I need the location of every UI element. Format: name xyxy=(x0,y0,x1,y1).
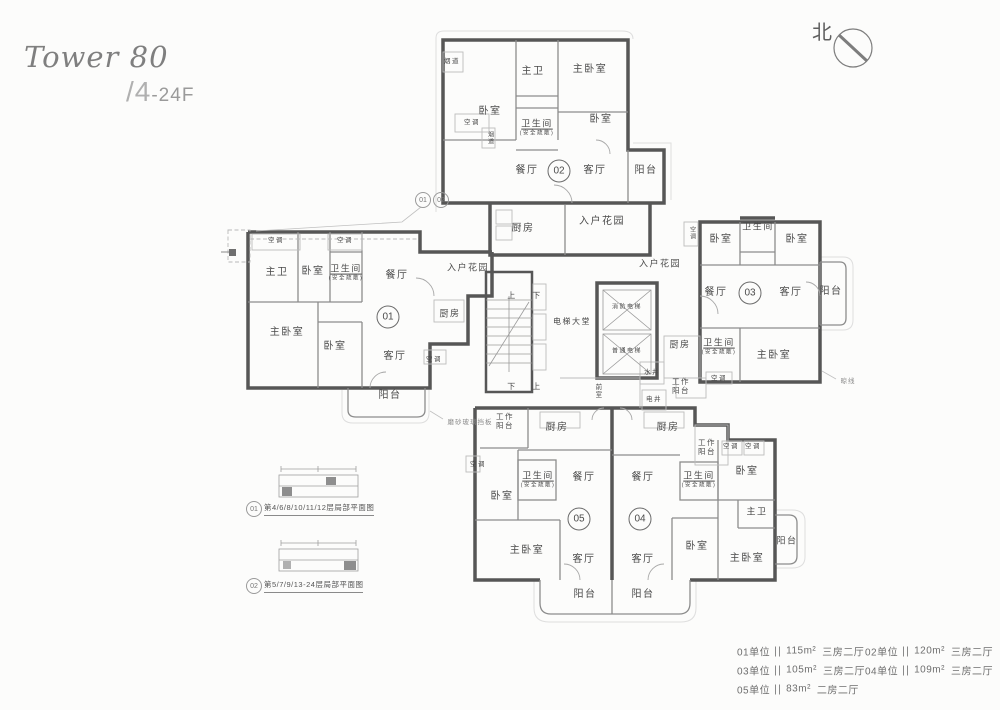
room-label: 入户花园 xyxy=(639,259,681,270)
room-label: 卧室 xyxy=(324,341,347,353)
legend-layout: 三房二厅 xyxy=(951,644,993,659)
callout-number-badge: 02 xyxy=(433,192,449,208)
legend-area: 115m² xyxy=(786,646,816,657)
room-label: 主卫 xyxy=(266,267,289,279)
room-label: 卫生间 xyxy=(683,471,715,482)
legend-layout: 三房二厅 xyxy=(822,644,864,659)
room-label: 阳台 xyxy=(574,589,597,601)
unit-number-badge: 05 xyxy=(568,508,591,531)
unit-number-badge: 02 xyxy=(548,160,571,183)
room-label: 卧室 xyxy=(710,234,733,246)
unit-number-badge: 04 xyxy=(629,508,652,531)
annotation-note: 晾线 xyxy=(841,375,856,385)
legend-unit: 05单位 xyxy=(737,682,770,697)
room-label: 餐厅 xyxy=(632,472,655,484)
room-label: 下 xyxy=(532,291,542,301)
inset-caption: 第5/7/9/13-24层局部平面图 xyxy=(264,579,363,593)
room-label: 工作 阳台 xyxy=(672,377,690,395)
room-label: 厨房 xyxy=(546,422,569,434)
room-label: (安全疏散) xyxy=(521,483,556,490)
inset-caption: 第4/6/8/10/11/12层局部平面图 xyxy=(264,502,374,516)
room-label: 卫生间 xyxy=(330,264,362,275)
room-label: 空调 xyxy=(723,443,739,451)
room-label: 主卧室 xyxy=(510,545,545,557)
legend-unit: 03单位 xyxy=(737,663,770,678)
room-label: 空调 xyxy=(687,226,694,240)
room-label: 工作 阳台 xyxy=(496,412,514,430)
room-label: 厨房 xyxy=(439,309,460,320)
legend-divider xyxy=(775,665,780,675)
room-label: 客厅 xyxy=(632,554,655,566)
legend-item: 02单位120m²三房二厅 xyxy=(865,644,993,659)
callout-number-badge: 01 xyxy=(415,192,431,208)
room-label: 阳台 xyxy=(820,286,843,298)
room-label: 消防电梯 xyxy=(612,304,642,311)
room-label: 客厅 xyxy=(384,351,407,363)
room-label: (安全疏散) xyxy=(520,131,555,138)
room-label: 上 xyxy=(507,291,517,301)
room-label: 客厅 xyxy=(573,554,596,566)
legend-item: 03单位105m²三房二厅 xyxy=(737,663,865,678)
legend-divider xyxy=(775,684,780,694)
room-label: (安全疏散) xyxy=(702,350,737,357)
unit-number-badge: 03 xyxy=(739,282,762,305)
room-label: 空调 xyxy=(464,119,480,127)
room-label: 阳台 xyxy=(632,589,655,601)
room-label: 卧室 xyxy=(590,114,613,126)
room-label: 卧室 xyxy=(786,234,809,246)
room-label: 厨房 xyxy=(669,340,690,351)
room-label: 电井 xyxy=(646,396,662,404)
legend-area: 109m² xyxy=(914,665,945,676)
legend-divider xyxy=(903,646,908,656)
room-label: 工作 阳台 xyxy=(698,438,716,456)
room-label: 卧室 xyxy=(686,541,709,553)
room-label: 客厅 xyxy=(780,287,803,299)
room-label: 客厅 xyxy=(584,165,607,177)
room-label: 卧室 xyxy=(479,106,502,118)
inset-number-badge: 01 xyxy=(246,501,262,517)
room-label: 阳台 xyxy=(379,390,402,402)
floor-range-label: /4-24F xyxy=(126,76,194,108)
annotation-note: 磨砂玻璃挡板 xyxy=(448,416,493,426)
room-label: 卫生间 xyxy=(703,338,735,349)
room-label: 空调 xyxy=(426,356,442,364)
room-label: 厨房 xyxy=(657,422,680,434)
legend-divider xyxy=(775,646,780,656)
room-label: 水井 xyxy=(644,369,660,377)
room-label: 主卫 xyxy=(746,507,767,518)
page-title: Tower 80 xyxy=(24,40,169,74)
legend-unit: 02单位 xyxy=(865,644,898,659)
room-label: 电梯大堂 xyxy=(553,317,591,327)
legend-layout: 二房二厅 xyxy=(817,682,859,697)
room-label: 烟道 xyxy=(485,131,492,145)
room-label: 主卧室 xyxy=(270,327,305,339)
room-label: 下 xyxy=(507,382,517,392)
room-label: 主卫 xyxy=(522,66,545,78)
room-label: 空调 xyxy=(337,237,353,245)
room-label: 主卧室 xyxy=(757,350,792,362)
legend-item: 05单位83m²二房二厅 xyxy=(737,682,859,697)
room-label: 入户花园 xyxy=(579,216,625,228)
room-label: 空调 xyxy=(745,443,761,451)
floorplan-canvas: Tower 80 /4-24F 北 烟道卧室主卫主卧室卧室空调烟道卫生间(安全疏… xyxy=(0,0,1000,710)
room-label: 阳台 xyxy=(776,536,797,547)
legend-area: 120m² xyxy=(914,646,945,657)
room-label: 空调 xyxy=(711,375,727,383)
room-label: 上 xyxy=(532,382,542,392)
room-label: 卧室 xyxy=(302,266,325,278)
legend-layout: 三房二厅 xyxy=(823,663,865,678)
room-label: 卫生间 xyxy=(742,222,774,233)
room-label: 阳台 xyxy=(635,165,658,177)
legend-unit: 01单位 xyxy=(737,644,770,659)
room-label: 主卧室 xyxy=(573,64,608,76)
room-label: 烟道 xyxy=(444,58,460,66)
legend-area: 105m² xyxy=(786,665,817,676)
room-label: 前室 xyxy=(593,384,601,399)
room-label: 餐厅 xyxy=(705,287,728,299)
north-label: 北 xyxy=(812,16,832,45)
room-label: 卧室 xyxy=(491,491,514,503)
legend-divider xyxy=(903,665,908,675)
room-label: 餐厅 xyxy=(516,165,539,177)
legend-unit: 04单位 xyxy=(865,663,898,678)
room-label: (安全疏散) xyxy=(329,276,364,283)
room-label: 入户花园 xyxy=(447,263,489,274)
inset-number-badge: 02 xyxy=(246,578,262,594)
legend-item: 04单位109m²三房二厅 xyxy=(865,663,993,678)
unit-number-badge: 01 xyxy=(377,306,400,329)
room-label: (安全疏散) xyxy=(682,483,717,490)
north-compass-icon xyxy=(834,29,872,67)
room-label: 主卧室 xyxy=(730,553,765,565)
room-label: 空调 xyxy=(268,237,284,245)
room-label: 卧室 xyxy=(736,466,759,478)
legend-layout: 三房二厅 xyxy=(951,663,993,678)
legend-area: 83m² xyxy=(786,684,811,695)
room-label: 厨房 xyxy=(512,223,535,235)
room-label: 卫生间 xyxy=(522,471,554,482)
room-label: 空调 xyxy=(470,461,486,469)
room-label: 餐厅 xyxy=(573,472,596,484)
legend-item: 01单位115m²三房二厅 xyxy=(737,644,864,659)
room-label: 餐厅 xyxy=(386,270,409,282)
room-label: 普通电梯 xyxy=(612,348,642,355)
room-label: 卫生间 xyxy=(521,119,553,130)
